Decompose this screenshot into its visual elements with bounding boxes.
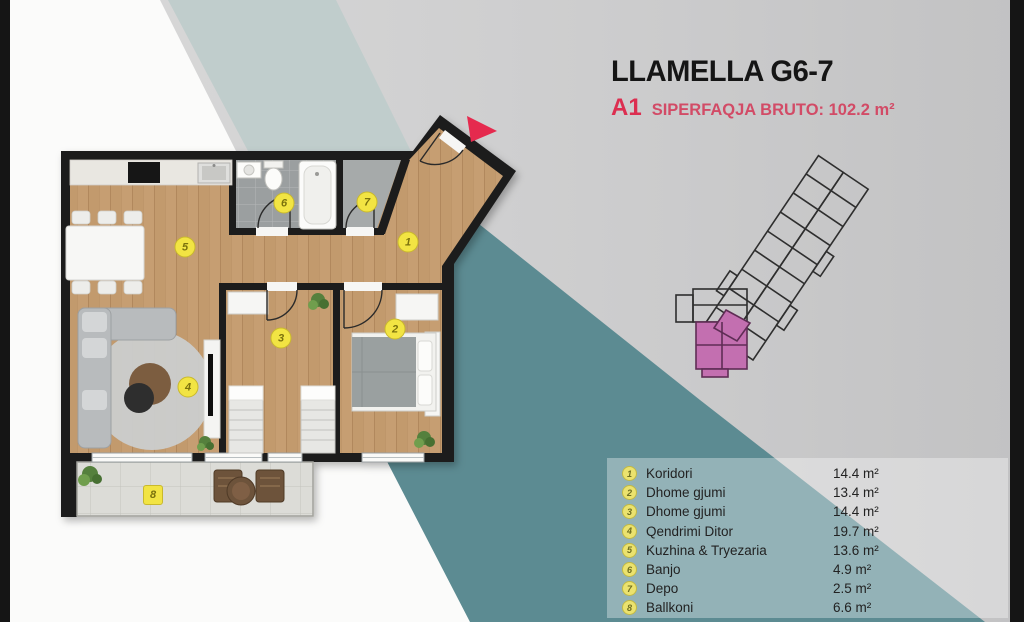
single-bed [301,386,335,453]
legend-row: 1 Koridori 14.4 m² [607,464,1008,483]
legend-area: 14.4 m² [833,504,879,519]
legend-num: 7 [622,581,637,596]
legend-label: Kuzhina & Tryezaria [646,543,833,558]
legend-row: 7 Depo 2.5 m² [607,579,1008,598]
legend-area: 14.4 m² [833,466,879,481]
double-bed [352,333,436,411]
legend-label: Qendrimi Ditor [646,524,833,539]
washbasin [237,162,261,178]
legend-row: 5 Kuzhina & Tryezaria 13.6 m² [607,541,1008,560]
legend-row: 4 Qendrimi Ditor 19.7 m² [607,522,1008,541]
room-marker-6: 6 [274,193,295,214]
legend-area: 2.5 m² [833,581,871,596]
legend-num: 6 [622,562,637,577]
floorplan-poster: LLAMELLA G6-7 A1 SIPERFAQJA BRUTO: 102.2… [0,0,1024,622]
room-marker-5: 5 [175,237,196,258]
legend-label: Ballkoni [646,600,833,615]
kitchen-counter [70,160,232,185]
legend-area: 13.6 m² [833,543,879,558]
legend-num: 1 [622,466,637,481]
legend-label: Depo [646,581,833,596]
legend-area: 13.4 m² [833,485,879,500]
legend-row: 8 Ballkoni 6.6 m² [607,598,1008,617]
single-bed [229,386,263,453]
legend-label: Dhome gjumi [646,504,833,519]
legend-num: 5 [622,543,637,558]
room-marker-7: 7 [357,192,378,213]
cooktop [128,162,160,183]
room-marker-4: 4 [178,377,199,398]
legend-label: Koridori [646,466,833,481]
dining-set [66,211,144,294]
wardrobe [228,292,268,314]
dining-table [66,226,144,280]
gross-area-label: SIPERFAQJA BRUTO: 102.2 m² [652,101,895,120]
unit-code: A1 [611,96,642,120]
room-marker-2: 2 [385,319,406,340]
legend-label: Banjo [646,562,833,577]
legend-label: Dhome gjumi [646,485,833,500]
legend-num: 4 [622,524,637,539]
legend-area: 19.7 m² [833,524,879,539]
legend-row: 2 Dhome gjumi 13.4 m² [607,483,1008,502]
legend-num: 8 [622,600,637,615]
room-legend: 1 Koridori 14.4 m² 2 Dhome gjumi 13.4 m²… [607,458,1008,618]
room-marker-3: 3 [271,328,292,349]
windows [92,453,424,462]
legend-row: 6 Banjo 4.9 m² [607,560,1008,579]
legend-area: 4.9 m² [833,562,871,577]
apartment-floorplan [61,115,516,517]
tv [208,354,213,416]
page-title: LLAMELLA G6-7 [611,55,833,89]
left-black-bar [0,0,10,622]
legend-num: 2 [622,485,637,500]
unit-area-line: A1 SIPERFAQJA BRUTO: 102.2 m² [611,96,895,120]
legend-num: 3 [622,504,637,519]
toilet [264,161,283,190]
legend-area: 6.6 m² [833,600,871,615]
room-marker-1: 1 [398,232,419,253]
wardrobe [396,294,438,320]
legend-row: 3 Dhome gjumi 14.4 m² [607,502,1008,521]
right-black-bar [1010,0,1024,622]
room-marker-8: 8 [143,485,163,505]
